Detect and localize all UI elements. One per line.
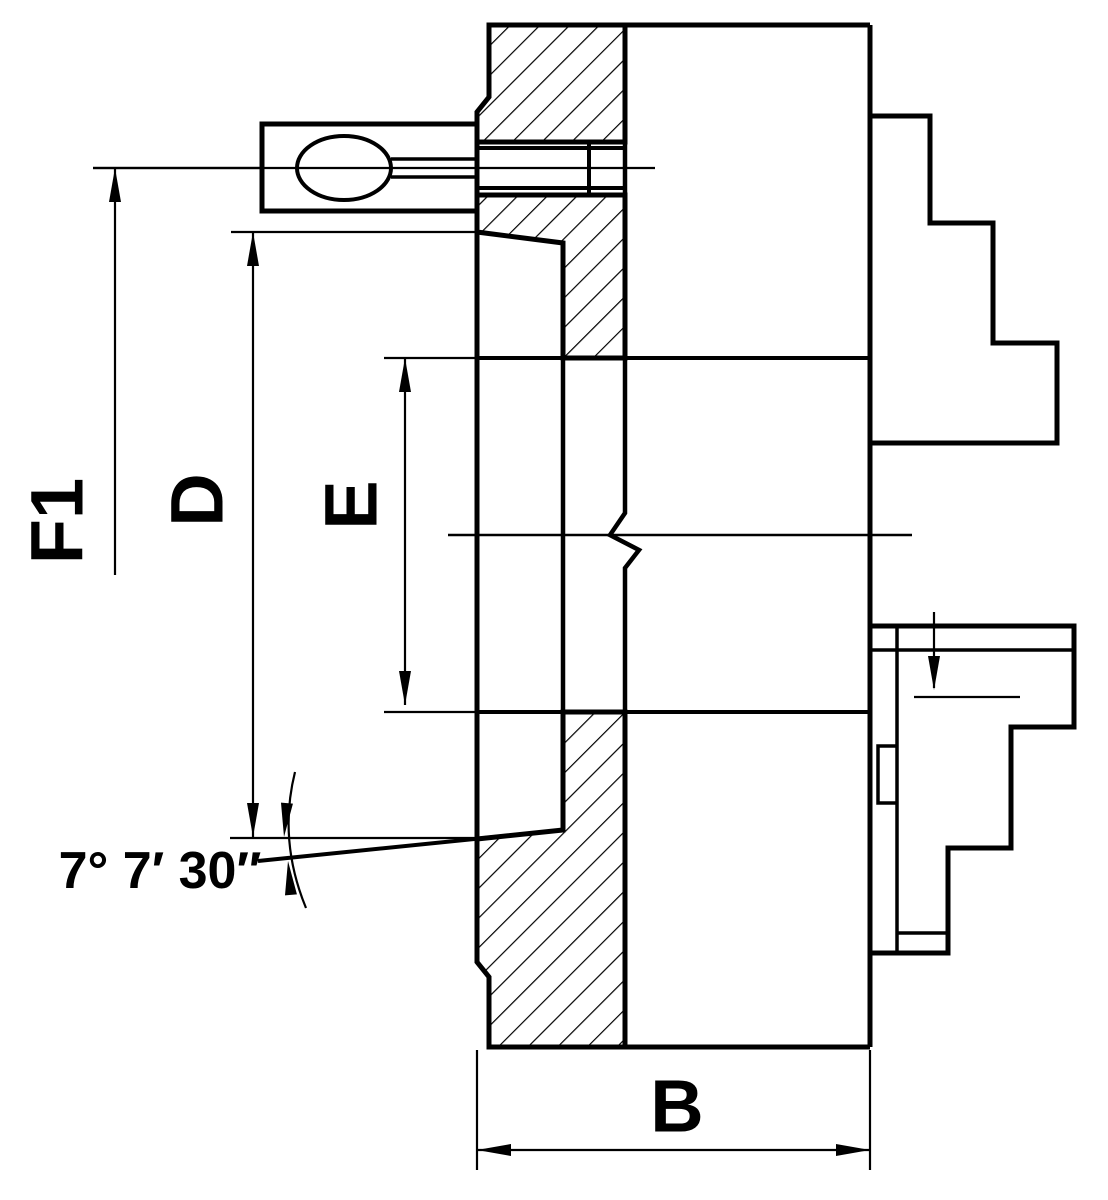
d-label: D [156, 473, 239, 526]
hatched-area-upper-middle-block [477, 195, 625, 358]
drawing-page: F1 D E B 7° 7′ 30″ [0, 0, 1108, 1200]
upper-jaw [870, 116, 1057, 443]
b-arrow-left [477, 1144, 511, 1156]
hatched-area-top-block [477, 25, 625, 142]
b-label: B [650, 1065, 703, 1148]
dimension-d: D [156, 232, 478, 838]
technical-drawing-canvas: F1 D E B 7° 7′ 30″ [0, 0, 1108, 1200]
hatched-area-bottom-block [477, 712, 625, 1047]
angle-arrow-upper [278, 803, 293, 838]
f1-arrow-up [109, 168, 121, 202]
dimension-taper-angle: 7° 7′ 30″ [59, 772, 306, 908]
dimension-e: E [310, 358, 412, 705]
d-arrow-down [247, 803, 259, 837]
e-arrow-down [399, 671, 411, 705]
e-label: E [310, 480, 393, 529]
b-arrow-right [836, 1144, 870, 1156]
e-arrow-up [399, 358, 411, 392]
lower-jaw-outline [870, 626, 1074, 953]
lower-jaw [870, 626, 1074, 953]
partial-dimension-arrow-down [928, 656, 940, 690]
upper-jaw-outline [870, 116, 1057, 443]
taper-angle-label: 7° 7′ 30″ [59, 842, 262, 900]
f1-label: F1 [16, 478, 99, 564]
d-arrow-up [247, 232, 259, 266]
lower-jaw-key-notch [878, 746, 897, 803]
dimension-b: B [477, 1050, 870, 1170]
